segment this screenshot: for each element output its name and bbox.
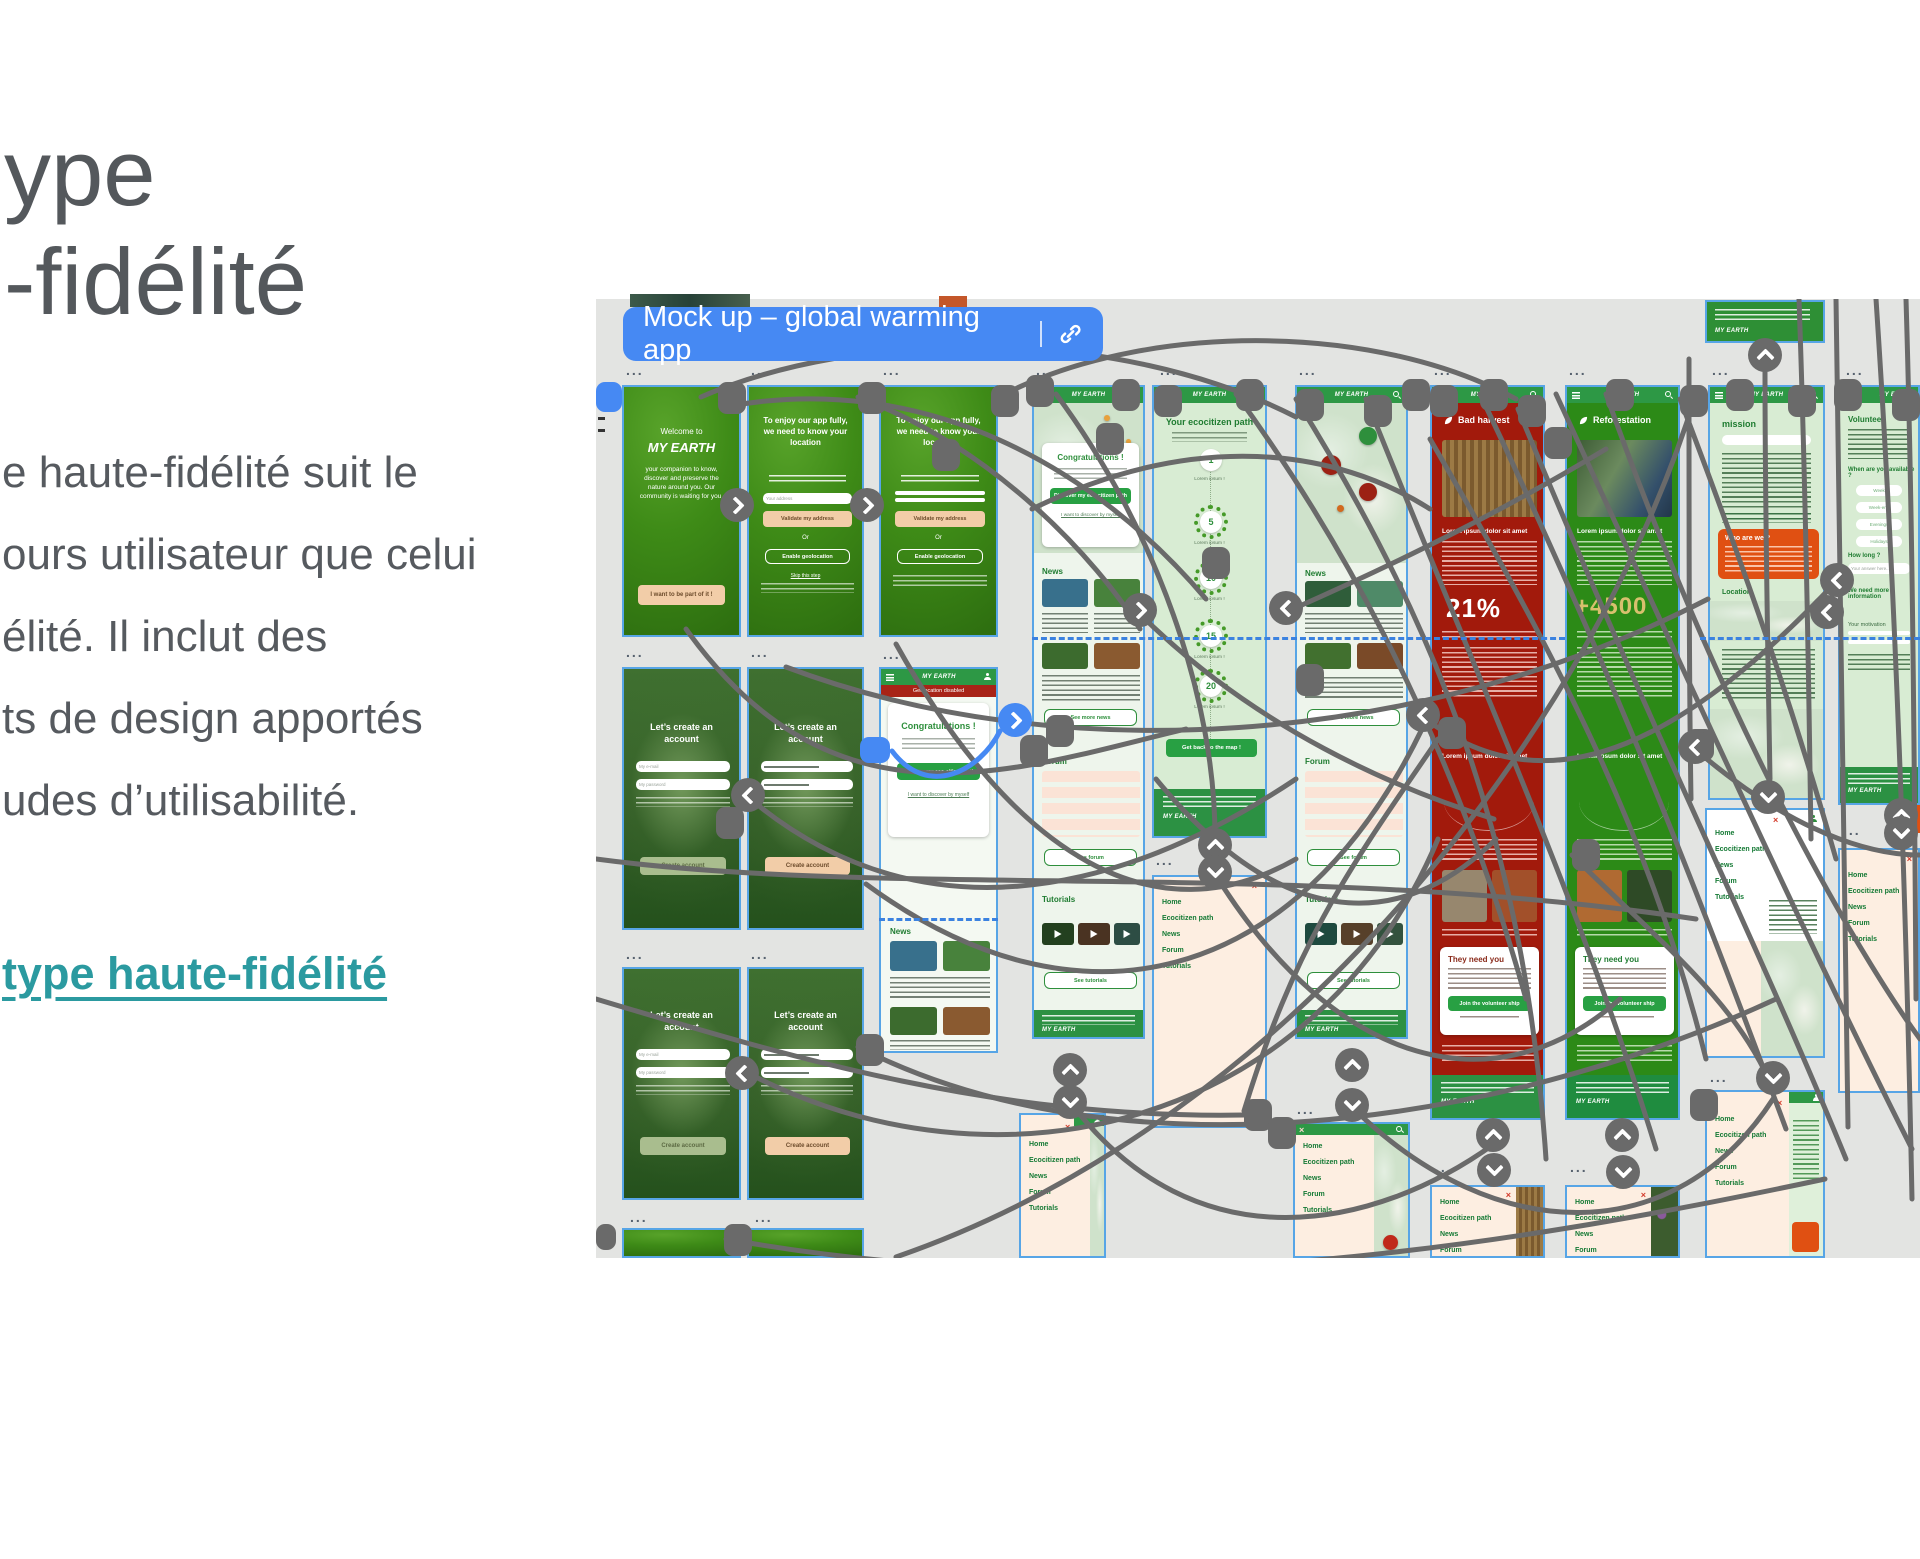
enable-geolocation-button[interactable]: Enable geolocation <box>897 549 983 564</box>
frame-name[interactable]: ... <box>1569 367 1587 373</box>
tutorials-section-title: Tutorials <box>1305 895 1338 904</box>
map-image <box>1761 941 1823 1056</box>
map-marker-red[interactable] <box>1359 483 1377 501</box>
connector-handle[interactable] <box>716 807 744 839</box>
text-placeholder <box>1793 1120 1819 1180</box>
motivation-input[interactable] <box>1848 631 1910 635</box>
frame-name[interactable]: ... <box>626 649 644 655</box>
connector-handle[interactable] <box>1518 395 1546 427</box>
or-label: Or <box>749 535 862 541</box>
frame-name[interactable]: ... <box>751 649 769 655</box>
lead-text: Lorem ipsum dolor sit amet <box>1442 528 1527 535</box>
path-step-badge[interactable]: 5 <box>1200 511 1222 533</box>
flow-arrow-down[interactable] <box>1053 1085 1087 1119</box>
back-to-map-button[interactable]: Get back to the map ! <box>1166 739 1257 757</box>
discover-path-button[interactable]: Discover my eco-citizen path <box>1050 488 1131 504</box>
viewport-fold-line <box>1032 637 1565 640</box>
connector-handle[interactable] <box>724 1224 752 1256</box>
who-are-we-card: Who are we ? <box>1718 529 1819 579</box>
text-placeholder <box>1054 468 1127 480</box>
news-thumbnail[interactable] <box>1357 581 1403 607</box>
reforestation-title: Reforestation <box>1593 415 1651 425</box>
connector-handle-blue[interactable] <box>596 382 622 412</box>
see-forum-button[interactable]: See forum <box>1044 849 1137 866</box>
frame-location-request-2[interactable]: To enjoy our app fully, we need to know … <box>879 385 998 637</box>
profile-icon[interactable] <box>1813 1094 1820 1102</box>
chart-placeholder <box>1444 772 1534 831</box>
frame-name[interactable]: ... <box>883 651 901 657</box>
text-placeholder <box>1577 541 1672 585</box>
connector-handle[interactable] <box>1788 385 1816 417</box>
paragraph-line: e haute-fidélité suit le <box>2 432 476 514</box>
frame-create-account[interactable]: Let’s create an account My e-mail My pas… <box>622 667 741 930</box>
menu-item[interactable]: Ecocitizen path <box>1162 915 1265 922</box>
chart-placeholder <box>1579 772 1669 831</box>
account-title: Let’s create an account <box>624 721 739 745</box>
text-placeholder <box>636 1085 730 1095</box>
frame-name[interactable]: ... <box>630 1214 648 1220</box>
video-thumbnail[interactable] <box>1377 923 1403 945</box>
availability-option[interactable]: Week <box>1856 485 1902 496</box>
app-logo: MY EARTH <box>1305 1027 1406 1033</box>
connector-handle[interactable] <box>1026 375 1054 407</box>
text-placeholder <box>1442 839 1537 863</box>
close-icon[interactable]: × <box>1907 854 1912 864</box>
news-thumbnail[interactable] <box>1042 579 1088 607</box>
link-icon[interactable] <box>1058 321 1083 347</box>
connector-handle[interactable] <box>1364 395 1392 427</box>
they-need-you-card: They need you Join the volunteer ship <box>1575 947 1674 1035</box>
video-thumbnail[interactable] <box>1305 923 1337 945</box>
text-placeholder <box>1305 1015 1398 1025</box>
map-marker[interactable] <box>1104 415 1110 421</box>
text-placeholder <box>1042 613 1088 633</box>
flow-arrow-up[interactable] <box>1476 1118 1510 1152</box>
password-input[interactable]: My password <box>636 779 730 790</box>
frame-name[interactable]: ... <box>1160 367 1178 373</box>
flow-arrow-right[interactable] <box>1123 593 1157 627</box>
frame-name[interactable]: ... <box>1435 1164 1453 1170</box>
text-placeholder <box>761 583 854 593</box>
menu-item[interactable]: News <box>1162 931 1265 938</box>
video-thumbnail[interactable] <box>1341 923 1373 945</box>
flow-arrow-down[interactable] <box>1335 1088 1369 1122</box>
frame-menu-overlay[interactable]: × HomeEcocitizen pathNewsForumTutorials <box>1565 1185 1680 1258</box>
text-placeholder <box>1848 654 1910 672</box>
search-icon[interactable] <box>1665 391 1673 399</box>
connector-handle[interactable] <box>932 439 960 471</box>
menu-item[interactable]: News <box>1715 862 1823 869</box>
join-button[interactable]: I want to be part of it ! <box>638 585 725 605</box>
frame-name[interactable]: ... <box>1299 367 1317 373</box>
frame-name[interactable]: ... <box>626 367 644 373</box>
app-logo: MY EARTH <box>1335 392 1369 398</box>
map-marker-green[interactable] <box>1359 427 1377 445</box>
search-bar[interactable] <box>1722 435 1811 445</box>
congrats-card: Congratulations ! Discover my eco-citize… <box>888 703 989 837</box>
mission-title: mission <box>1722 419 1823 429</box>
text-placeholder <box>1442 541 1537 585</box>
text-placeholder <box>1305 613 1403 633</box>
email-input[interactable] <box>761 761 853 772</box>
connector-handle[interactable] <box>1690 1089 1718 1121</box>
step-caption: Lorem ipsum ! <box>1154 477 1265 482</box>
filled-text <box>764 766 819 768</box>
text-placeholder <box>1848 773 1910 785</box>
see-more-news-button[interactable]: See more news <box>1307 709 1400 726</box>
frame-name[interactable]: ... <box>1434 367 1452 373</box>
viewport-fold-line <box>879 918 998 921</box>
flow-arrow-down[interactable] <box>1198 855 1232 889</box>
filled-text <box>764 1054 819 1056</box>
orange-card <box>1792 1222 1819 1252</box>
address-input[interactable] <box>895 491 985 495</box>
email-input[interactable]: My e-mail <box>636 761 730 772</box>
frame-mission[interactable]: MY EARTH mission Who are we ? Location <box>1708 385 1825 800</box>
connector-handle[interactable] <box>1096 423 1124 455</box>
app-footer: MY EARTH <box>1034 1010 1143 1039</box>
close-icon[interactable]: × <box>1252 881 1257 891</box>
frame-menu-overlay[interactable]: × HomeEcocitizen pathNewsForumTutorials <box>1838 848 1920 1093</box>
create-account-button[interactable]: Create account <box>765 857 850 875</box>
text-placeholder <box>1460 1016 1519 1020</box>
search-icon[interactable] <box>1396 1126 1404 1134</box>
harvest-title: Bad harvest <box>1458 415 1510 425</box>
card-title: They need you <box>1583 955 1674 964</box>
menu-item[interactable]: Tutorials <box>1848 936 1918 943</box>
connector-handle[interactable] <box>1892 389 1920 421</box>
frame-location-request[interactable]: To enjoy our app fully, we need to know … <box>747 385 864 637</box>
connector-handle[interactable] <box>1020 735 1048 767</box>
lead-text: Lorem ipsum dolor sit amet <box>1577 753 1662 760</box>
app-logo: MY EARTH <box>1042 1027 1143 1033</box>
menu-icon[interactable] <box>886 674 894 681</box>
text-placeholder <box>1577 631 1672 639</box>
prototype-title: Mock up – global warming app <box>643 301 1024 367</box>
connector-handle[interactable] <box>1480 379 1508 411</box>
forum-posts-list[interactable] <box>1042 771 1140 837</box>
frame-name[interactable]: ... <box>1156 857 1174 863</box>
connector-handle[interactable] <box>1544 427 1572 459</box>
frame-volunteer-form[interactable]: MY EARTH Volunteer When are you availabl… <box>1838 385 1920 805</box>
news-thumbnail[interactable] <box>890 941 937 971</box>
skip-link[interactable]: Skip this step <box>749 573 862 579</box>
news-section-title: News <box>890 927 911 936</box>
answer-input[interactable]: Your answer here... <box>1848 563 1910 574</box>
close-icon[interactable]: × <box>1299 1125 1304 1135</box>
password-input[interactable]: My password <box>636 1067 730 1078</box>
frame-bad-harvest[interactable]: MY EARTH Bad harvest Lorem ipsum dolor s… <box>1430 385 1545 1120</box>
app-logo: MY EARTH <box>1072 392 1106 398</box>
news-thumbnail[interactable] <box>890 1007 937 1035</box>
discover-myself-link[interactable]: I want to discover by myself <box>888 792 989 798</box>
frame-name[interactable]: ... <box>1710 1074 1728 1080</box>
discover-path-button[interactable]: Discover my eco-citizen path <box>897 763 980 780</box>
field-photo <box>1442 870 1487 922</box>
frame-menu-overlay[interactable]: × HomeEcocitizen pathNewsForumTutorials <box>1293 1122 1410 1258</box>
availability-option[interactable]: Evenings <box>1856 519 1902 530</box>
paragraph-line: ts de design apportés <box>2 678 476 760</box>
connector-handle[interactable] <box>1236 379 1264 411</box>
lead-text: Lorem ipsum dolor sit amet <box>1577 528 1662 535</box>
text-placeholder <box>1577 929 1672 937</box>
flow-arrow-up[interactable] <box>1335 1048 1369 1082</box>
lead-text: Lorem ipsum dolor sit amet <box>1442 753 1527 760</box>
frame-congrats-news[interactable]: MY EARTH Geolocation disabled Congratula… <box>879 667 998 1053</box>
harvest-stat: 21% <box>1446 593 1501 624</box>
menu-items[interactable]: HomeEcocitizen pathNewsForumTutorials <box>1840 872 1918 943</box>
menu-item[interactable]: Forum <box>1715 878 1823 885</box>
menu-item[interactable]: News <box>1848 904 1918 911</box>
flow-arrow-down[interactable] <box>1477 1153 1511 1187</box>
path-step-badge[interactable]: 1 <box>1200 449 1222 471</box>
menu-items[interactable]: HomeEcocitizen pathNewsForumTutorials <box>1707 830 1823 901</box>
address-input-line <box>895 498 985 502</box>
step-caption: Lorem ipsum ! <box>1154 597 1265 602</box>
harvest-photo <box>1442 440 1537 517</box>
frame-name[interactable]: ... <box>1023 1096 1041 1102</box>
frame-ecocitizen-path[interactable]: MY EARTH Your ecocitizen path 1 Lorem ip… <box>1152 385 1267 838</box>
search-icon[interactable] <box>1393 391 1401 399</box>
app-logo: MY EARTH <box>1576 1099 1678 1105</box>
connector-handle-blue[interactable] <box>860 737 890 763</box>
video-thumbnail[interactable] <box>1114 923 1140 945</box>
close-icon[interactable]: × <box>1773 815 1778 825</box>
validate-address-button[interactable]: Validate my address <box>895 511 985 527</box>
close-icon[interactable]: × <box>1506 1190 1511 1200</box>
frame-name[interactable]: ... <box>755 1214 773 1220</box>
see-tutorials-button[interactable]: See tutorials <box>1307 972 1400 989</box>
flow-arrow-left[interactable] <box>1269 591 1303 625</box>
location-title: To enjoy our app fully, we need to know … <box>749 387 862 448</box>
validate-address-button[interactable]: Validate my address <box>763 511 852 527</box>
app-header: MY EARTH <box>881 669 996 685</box>
stat-marker <box>1383 1235 1398 1250</box>
connector-handle[interactable] <box>1572 839 1600 871</box>
create-account-button[interactable]: Create account <box>640 857 726 875</box>
see-forum-button[interactable]: See forum <box>1307 849 1400 866</box>
flow-arrow-right-selected[interactable] <box>998 703 1032 737</box>
menu-item[interactable]: Ecocitizen path <box>1848 888 1918 895</box>
flow-arrow-right[interactable] <box>720 488 754 522</box>
frame-congrats-map[interactable]: MY EARTH Congratulations ! Discover my e… <box>1032 385 1145 1039</box>
menu-item[interactable]: Ecocitizen path <box>1715 846 1823 853</box>
address-input[interactable]: Your address <box>763 493 852 504</box>
tutorials-section-title: Tutorials <box>1042 895 1075 904</box>
enable-geolocation-button[interactable]: Enable geolocation <box>765 549 850 564</box>
frame-create-account-filled[interactable]: Let’s create an account Create account <box>747 967 864 1200</box>
availability-question: When are you available ? <box>1848 467 1918 479</box>
close-icon[interactable]: × <box>1777 1098 1782 1108</box>
connector-handle[interactable] <box>1202 547 1230 579</box>
frame-menu-overlay[interactable]: × HomeEcocitizen pathNewsForumTutorials <box>1705 808 1825 1058</box>
menu-item[interactable]: Tutorials <box>1162 963 1265 970</box>
flow-arrow-up[interactable] <box>1748 338 1782 372</box>
availability-options[interactable]: WeekWeek-endEveningsHolidays <box>1840 485 1918 547</box>
close-icon[interactable]: × <box>1641 1190 1646 1200</box>
text-placeholder <box>1583 968 1666 990</box>
create-account-button[interactable]: Create account <box>640 1137 726 1155</box>
flow-arrow-left[interactable] <box>1810 595 1844 629</box>
prototype-title-pill[interactable]: Mock up – global warming app <box>623 307 1103 361</box>
menu-icon[interactable] <box>1572 392 1580 399</box>
map-image <box>1297 403 1406 563</box>
flow-arrow-right[interactable] <box>850 488 884 522</box>
text-placeholder <box>1722 649 1815 699</box>
menu-item[interactable]: Home <box>1715 830 1823 837</box>
news-thumbnail[interactable] <box>1094 643 1140 669</box>
forum-posts-list[interactable] <box>1305 771 1403 837</box>
close-icon[interactable]: × <box>1065 1122 1070 1132</box>
connector-handle[interactable] <box>1268 1117 1296 1149</box>
menu-panel <box>1707 941 1763 1056</box>
flow-arrow-left[interactable] <box>1678 730 1712 764</box>
connector-handle[interactable] <box>718 382 746 414</box>
app-logo: MY EARTH <box>1750 392 1784 398</box>
connector-handle[interactable] <box>1438 717 1466 749</box>
app-logo: MY EARTH <box>1163 814 1265 820</box>
frame-name[interactable]: ... <box>1297 1106 1315 1112</box>
connector-handle[interactable] <box>1046 715 1074 747</box>
figma-prototype-canvas[interactable]: MY EARTH Mock up – global warming app ..… <box>596 299 1920 1258</box>
flow-arrow-left[interactable] <box>1406 698 1440 732</box>
frame-name[interactable]: ... <box>1570 1164 1588 1170</box>
menu-item[interactable]: Forum <box>1848 920 1918 927</box>
flow-arrow-left[interactable] <box>1820 563 1854 597</box>
menu-items[interactable]: HomeEcocitizen pathNewsForumTutorials <box>1154 899 1265 970</box>
news-thumbnail[interactable] <box>1357 643 1403 669</box>
text-placeholder <box>1576 1082 1669 1095</box>
header-fragment: × <box>1295 1124 1408 1135</box>
frame-menu-overlay[interactable]: × HomeEcocitizen pathNewsForumTutorials <box>1019 1113 1106 1258</box>
step-caption: Lorem ipsum ! <box>1154 655 1265 660</box>
create-account-button[interactable]: Create account <box>765 1137 850 1155</box>
profile-icon[interactable] <box>1810 815 1817 823</box>
see-tutorials-button[interactable]: See tutorials <box>1044 972 1137 989</box>
frame-create-account[interactable]: Let’s create an account My e-mail My pas… <box>622 967 741 1200</box>
menu-item[interactable]: Home <box>1162 899 1265 906</box>
menu-item[interactable]: Forum <box>1162 947 1265 954</box>
splash-body: your companion to know, discover and pre… <box>624 455 739 501</box>
app-logo: MY EARTH <box>1193 392 1227 398</box>
frame-name[interactable]: ... <box>1843 827 1861 833</box>
news-section-title: News <box>1042 567 1063 576</box>
video-thumbnail[interactable] <box>1078 923 1110 945</box>
page-title-line1: ype <box>4 118 307 227</box>
paragraph-line: élité. Il inclut des <box>2 596 476 678</box>
congrats-card: Congratulations ! Discover my eco-citize… <box>1042 443 1139 547</box>
flow-arrow-left[interactable] <box>725 1056 759 1090</box>
connector-handle[interactable] <box>1430 385 1458 417</box>
connector-handle[interactable] <box>1296 389 1324 421</box>
text-placeholder <box>769 475 846 484</box>
text-placeholder <box>1577 1045 1672 1063</box>
frame-menu-overlay[interactable]: × HomeEcocitizen pathNewsForumTutorials <box>1705 1090 1825 1258</box>
password-input[interactable] <box>761 779 853 790</box>
menu-icon[interactable] <box>1715 392 1723 399</box>
frame-name[interactable]: ... <box>1036 367 1054 373</box>
flow-arrow-left[interactable] <box>731 778 765 812</box>
discover-myself-link[interactable]: I want to discover by myself <box>1042 513 1139 518</box>
text-placeholder <box>890 1040 990 1050</box>
app-footer: MY EARTH <box>1297 1010 1406 1039</box>
frame-name[interactable]: ... <box>1846 367 1864 373</box>
flow-arrow-down[interactable] <box>1756 1061 1790 1095</box>
connector-handle[interactable] <box>1834 379 1862 411</box>
news-thumbnail[interactable] <box>943 1007 990 1035</box>
geolocation-banner: Geolocation disabled <box>881 685 996 697</box>
flow-arrow-down[interactable] <box>1606 1155 1640 1189</box>
text-placeholder <box>901 475 979 484</box>
email-input[interactable]: My e-mail <box>636 1049 730 1060</box>
connector-handle[interactable] <box>1112 379 1140 411</box>
profile-icon[interactable] <box>984 673 991 681</box>
connector-handle[interactable] <box>991 385 1019 417</box>
connector-handle[interactable] <box>858 382 886 414</box>
availability-option[interactable]: Week-end <box>1856 502 1902 513</box>
frame-menu-overlay[interactable]: × HomeEcocitizen pathNewsForumTutorials <box>1152 875 1267 1128</box>
news-thumbnail[interactable] <box>943 941 990 971</box>
splash-welcome: Welcome to <box>624 427 739 436</box>
connector-handle[interactable] <box>856 1034 884 1066</box>
account-title: Let’s create an account <box>749 721 862 745</box>
news-thumbnail[interactable] <box>1042 643 1088 669</box>
text-placeholder <box>1163 796 1256 810</box>
frame-name[interactable]: ... <box>1712 367 1730 373</box>
flow-arrow-down[interactable] <box>1884 816 1918 850</box>
frame-name[interactable]: ... <box>626 951 644 957</box>
join-volunteer-button[interactable]: Join the volunteer ship <box>1448 996 1531 1011</box>
text-placeholder <box>1442 647 1537 699</box>
profile-icon[interactable] <box>1094 1117 1101 1125</box>
video-thumbnail[interactable] <box>1042 923 1074 945</box>
flow-arrow-up[interactable] <box>1053 1053 1087 1087</box>
connector-handle[interactable] <box>1726 379 1754 411</box>
email-input[interactable] <box>761 1049 853 1060</box>
body-paragraph: e haute-fidélité suit leours utilisateur… <box>2 432 476 842</box>
frame-name[interactable]: ... <box>751 951 769 957</box>
connector-handle[interactable] <box>1154 385 1182 417</box>
frame-map-actions[interactable]: MY EARTH News See more news Forum See fo… <box>1295 385 1408 1039</box>
frame-menu-overlay[interactable]: × HomeEcocitizen pathNewsForumTutorials <box>1430 1185 1545 1258</box>
flow-arrow-down[interactable] <box>1751 780 1785 814</box>
path-step-badge[interactable]: 20 <box>1200 675 1222 697</box>
map-marker-small[interactable] <box>1337 505 1344 512</box>
password-input[interactable] <box>761 1067 853 1078</box>
connector-handle[interactable] <box>1296 664 1324 696</box>
path-step-badge[interactable]: 15 <box>1200 625 1222 647</box>
connector-handle[interactable] <box>1680 385 1708 417</box>
text-placeholder <box>1722 453 1811 509</box>
availability-option[interactable]: Holidays <box>1856 536 1902 547</box>
flow-arrow-up[interactable] <box>1605 1118 1639 1152</box>
news-section-title: News <box>1305 569 1326 578</box>
frame-name[interactable]: ... <box>751 367 769 373</box>
frame-name[interactable]: ... <box>883 367 901 373</box>
text-placeholder <box>1042 1015 1135 1025</box>
prototype-link[interactable]: type haute-fidélité <box>2 948 387 1000</box>
field-photo <box>1627 870 1672 922</box>
connector-handle[interactable] <box>1402 379 1430 411</box>
congrats-title: Congratulations ! <box>888 721 989 731</box>
join-volunteer-button[interactable]: Join the volunteer ship <box>1583 996 1666 1011</box>
menu-item[interactable]: Home <box>1848 872 1918 879</box>
account-title: Let’s create an account <box>624 1009 739 1033</box>
news-thumbnail[interactable] <box>1305 581 1351 607</box>
connector-handle[interactable] <box>1606 379 1634 411</box>
frame-reforestation[interactable]: MY EARTH Reforestation Lorem ipsum dolor… <box>1565 385 1680 1120</box>
connector-handle[interactable] <box>596 1224 616 1250</box>
